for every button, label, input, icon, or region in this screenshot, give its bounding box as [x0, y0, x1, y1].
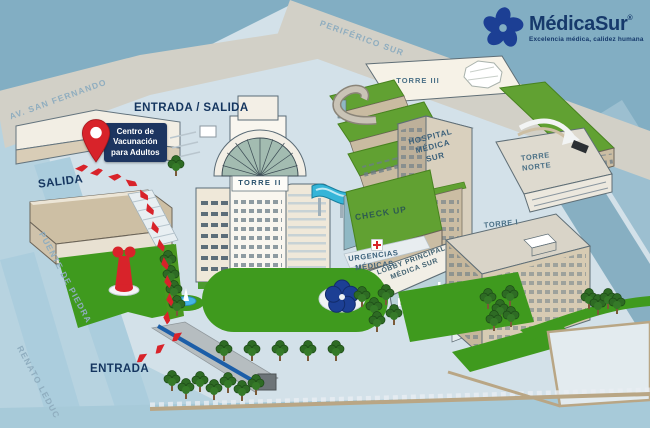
entry-booth [200, 126, 216, 137]
campus-illustration [0, 0, 650, 428]
brand-wordmark: MédicaSur® [529, 14, 644, 34]
vaccination-center-badge: Centro de Vacunación para Adultos [104, 123, 167, 162]
medica-sur-campus-map: PERIFÉRICO SUR AV. SAN FERNANDO PUENTE D… [0, 0, 650, 428]
red-cross-icon [371, 239, 383, 251]
registered-mark: ® [627, 15, 632, 22]
medicasur-flower-icon [482, 6, 524, 50]
location-pin-icon [80, 118, 112, 164]
medicasur-logo: MédicaSur® Excelencia médica, calidez hu… [482, 6, 644, 50]
brand-tagline: Excelencia médica, calidez humana [529, 36, 644, 43]
